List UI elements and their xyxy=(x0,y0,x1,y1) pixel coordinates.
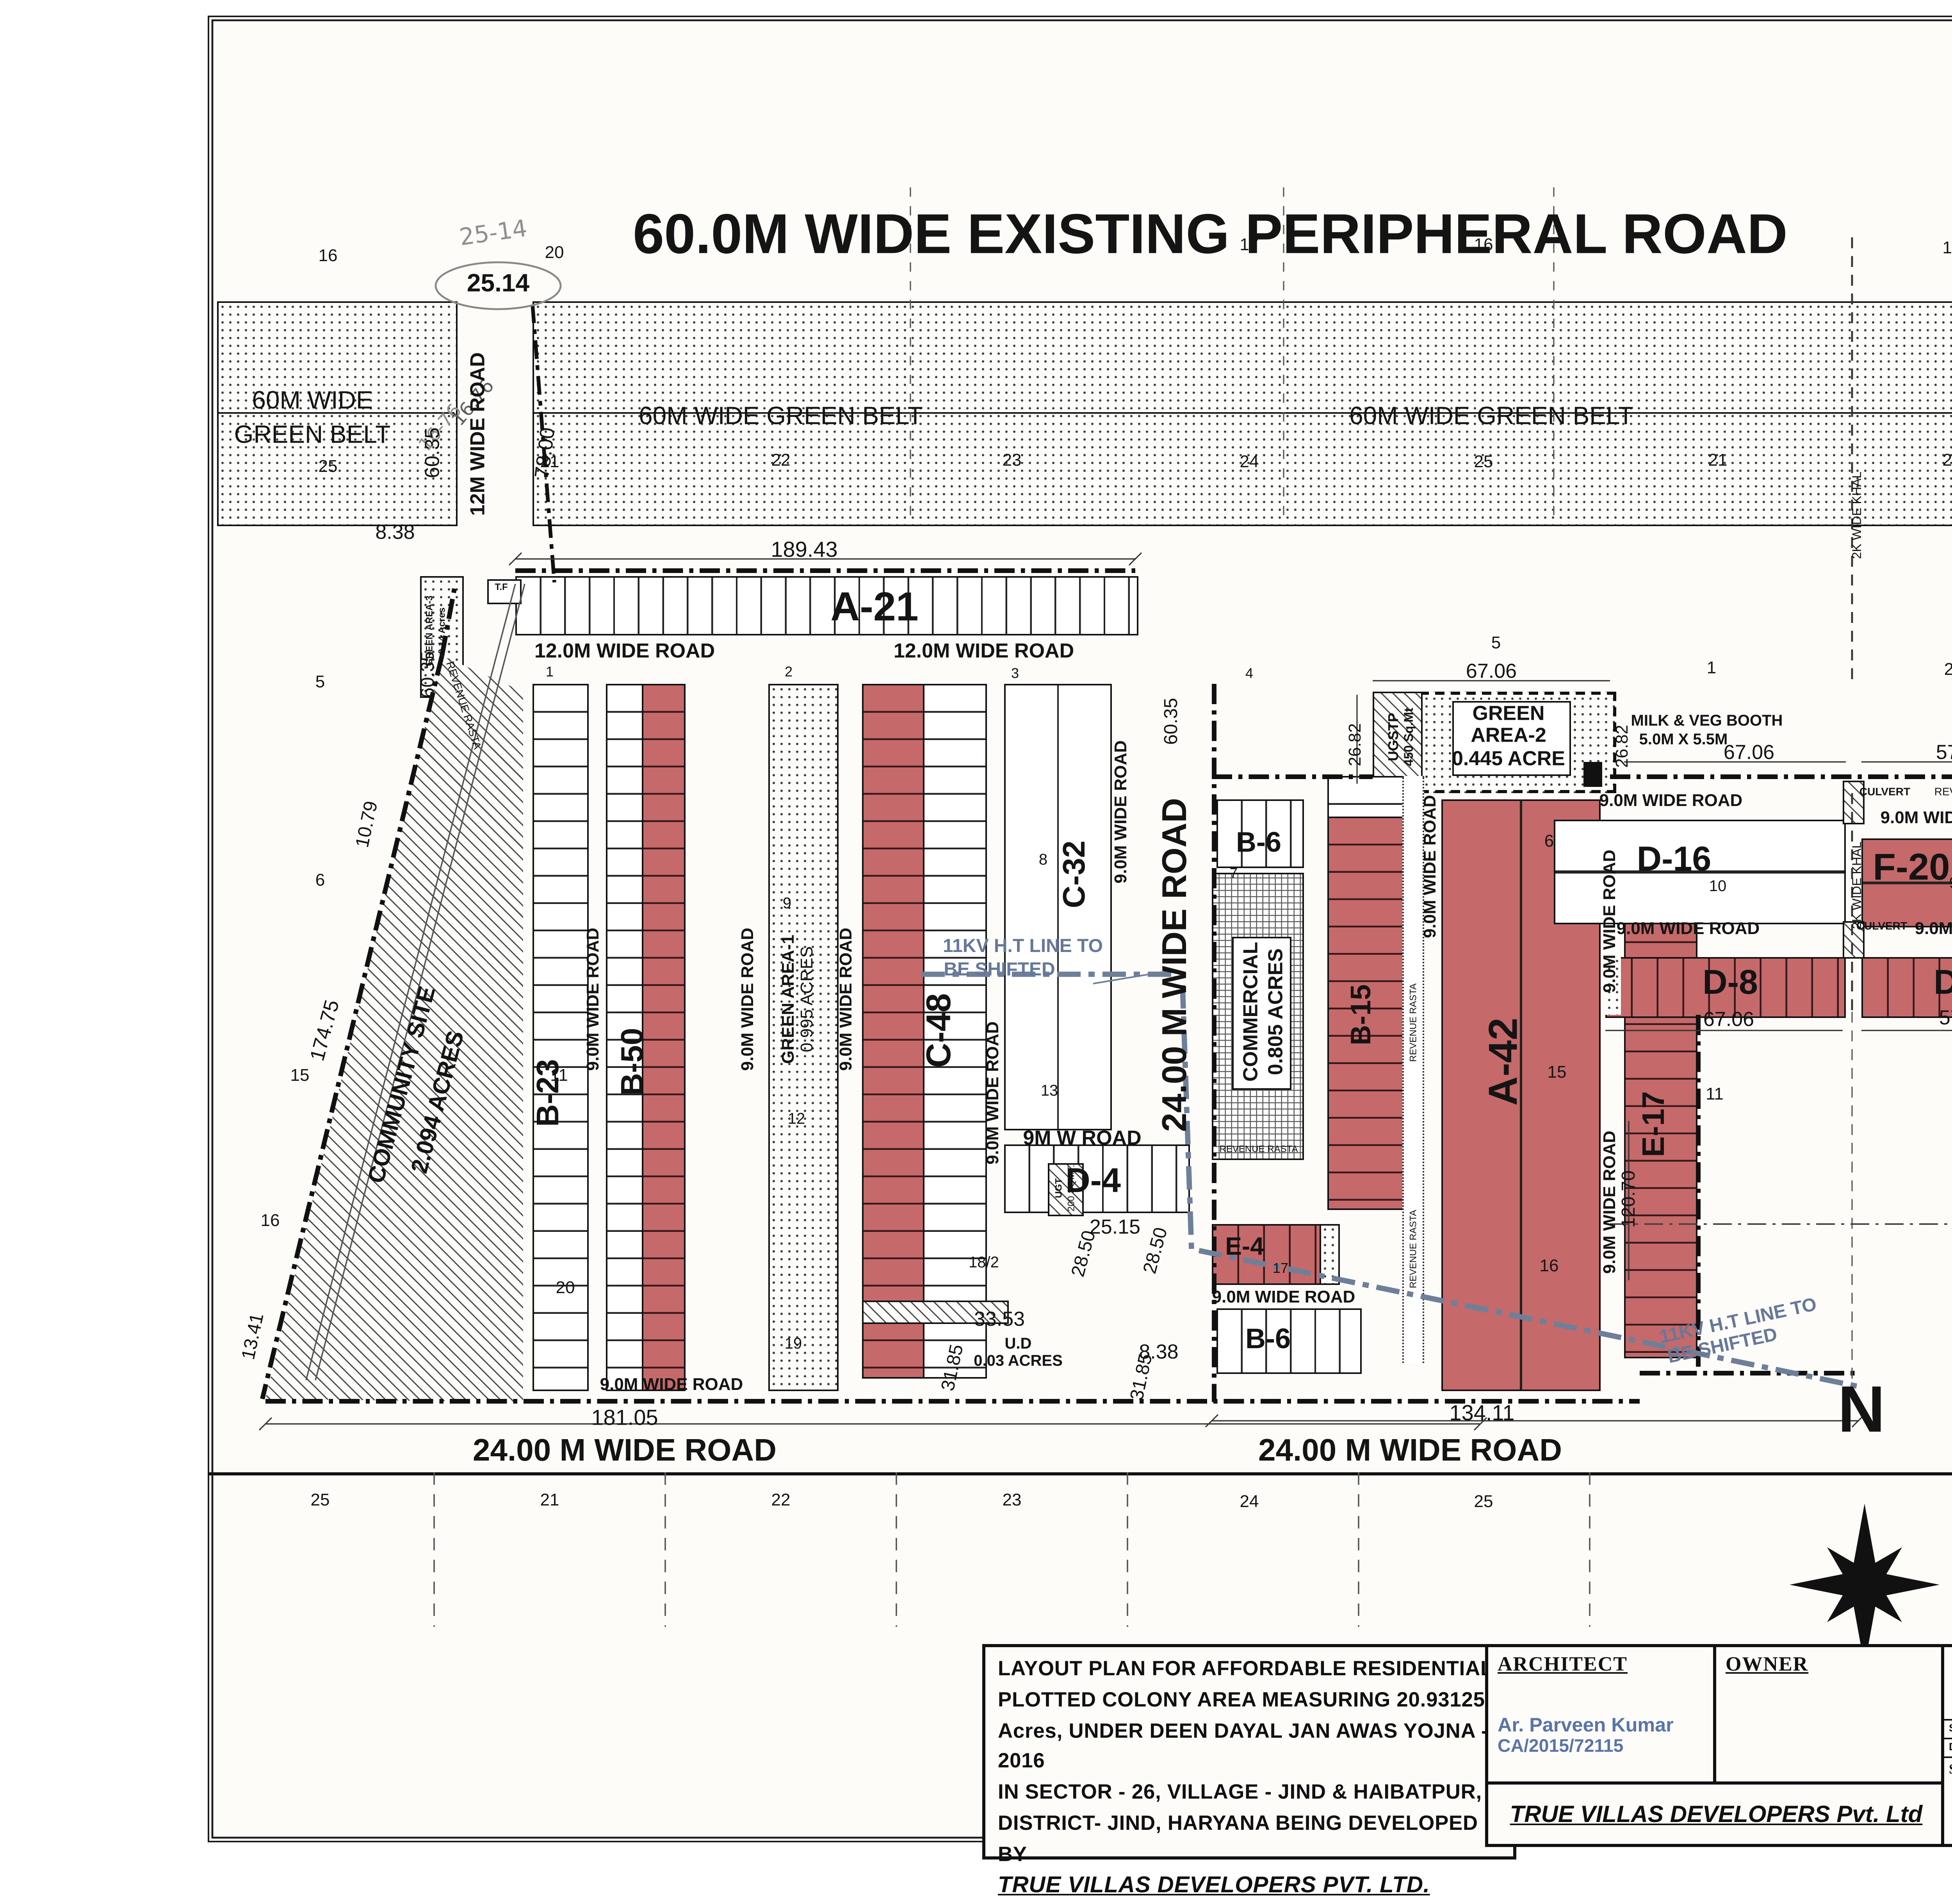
plan-label: BE SHIFTED xyxy=(944,960,1055,979)
dim-or-parcel-number: 22 xyxy=(1943,453,1952,471)
plan-label: 9.0M WIDE ROAD xyxy=(1114,740,1132,884)
dim-or-parcel-number: 17 xyxy=(1273,1262,1288,1277)
plan-label: AREA-2 xyxy=(1471,725,1546,746)
dim-or-parcel-number: 25 xyxy=(319,459,338,477)
sheet-no-label: SHEET N0 xyxy=(1944,1756,1952,1780)
dim-or-parcel-number: 24 xyxy=(1240,1495,1259,1513)
sheet-number: 1 xyxy=(1944,1780,1952,1833)
dim-or-parcel-number: 1 xyxy=(546,666,554,680)
dim-or-parcel-number: 60.35 xyxy=(418,651,438,698)
dim-or-parcel-number: 9 xyxy=(783,897,791,914)
dim-or-parcel-number: 60.35 xyxy=(422,427,443,478)
plan-label: 12M WIDE ROAD xyxy=(467,352,489,516)
dim-or-parcel-number: 10 xyxy=(1709,880,1727,897)
plan-label: 12.0M WIDE ROAD xyxy=(894,641,1074,662)
plan-label: D-7 xyxy=(1934,964,1952,1000)
dim-or-parcel-number: 5 xyxy=(315,675,325,693)
plan-label: REVENUE RASTA xyxy=(1410,984,1419,1062)
plan-label: B-50 xyxy=(618,1028,650,1095)
plan-label: 2K WIDE KHAL xyxy=(1852,842,1865,929)
dim-or-parcel-number: 12 xyxy=(788,1113,805,1129)
dim-or-parcel-number: 11 xyxy=(550,1068,568,1086)
architect-name: Ar. Parveen Kumar xyxy=(1498,1714,1726,1736)
project-title-line: LAYOUT PLAN FOR AFFORDABLE RESIDENTIAL xyxy=(998,1653,1501,1684)
north-letter: N xyxy=(1944,1650,1952,1672)
owner-block: OWNER xyxy=(1713,1644,1952,1797)
plan-label: 60.0M WIDE EXISTING PERIPHERAL ROAD xyxy=(633,205,1788,263)
plan-label: 200 SQMT. xyxy=(1068,1165,1078,1212)
dim-or-parcel-number: 21 xyxy=(1708,453,1728,471)
plan-label: 9.0M WIDE ROAD xyxy=(586,928,604,1071)
plan-label: 60M WIDE GREEN BELT xyxy=(639,405,923,431)
plan-label: B-6 xyxy=(1236,828,1281,858)
project-title-line: PLOTTED COLONY AREA MEASURING 20.93125 xyxy=(998,1684,1501,1715)
dim-or-parcel-number: 2 xyxy=(1944,662,1952,680)
dim-or-parcel-number: 1 xyxy=(1707,661,1717,679)
plan-label: UGT xyxy=(1055,1178,1065,1198)
owner-heading: OWNER xyxy=(1726,1652,1952,1677)
plan-label: REVENUE RASTA xyxy=(1934,787,1952,799)
dim-or-parcel-number: 8.38 xyxy=(375,522,415,543)
dim-or-parcel-number: 67.06 xyxy=(1703,1009,1754,1030)
dim-or-parcel-number: 16 xyxy=(319,249,338,267)
plan-label: 9.0M WIDE ROAD xyxy=(1617,922,1760,940)
plan-label: 9.0M WIDE ROAD xyxy=(1915,922,1952,940)
dim-or-parcel-number: 25-14 xyxy=(458,217,529,251)
scale-row: SCALE = 1: 500 xyxy=(1944,1719,1952,1738)
project-title-line: IN SECTOR - 26, VILLAGE - JIND & HAIBATP… xyxy=(998,1777,1501,1808)
plan-label: U.D xyxy=(1005,1338,1032,1354)
plan-label: E-17 xyxy=(1639,1091,1672,1157)
dim-or-parcel-number: 19 xyxy=(785,1338,802,1354)
dim-or-parcel-number: 26.82 xyxy=(1615,725,1633,768)
plan-label: C-32 xyxy=(1060,840,1092,908)
dim-or-parcel-number: 6 xyxy=(315,873,325,891)
info-block: N SCALE = 1: 500 DATE = DEC. 2021 SHEET … xyxy=(1941,1644,1952,1847)
plan-label: 9.0M WIDE ROAD xyxy=(1603,1131,1621,1274)
north-indicator: N xyxy=(1944,1647,1952,1714)
dim-or-parcel-number: 3 xyxy=(1011,667,1019,682)
dim-or-parcel-number: 2 xyxy=(785,666,793,680)
plan-label: 9.0M WIDE ROAD xyxy=(1212,1290,1355,1308)
dim-or-parcel-number: 25 xyxy=(1474,455,1493,473)
dim-or-parcel-number: 22 xyxy=(771,453,791,471)
plan-label: 0.445 ACRE xyxy=(1452,748,1565,770)
dim-or-parcel-number: 174.75 xyxy=(306,998,343,1063)
dim-or-parcel-number: 17 xyxy=(1240,238,1259,256)
dim-or-parcel-number: 22 xyxy=(771,1493,791,1511)
plan-label: E-4 xyxy=(1225,1236,1264,1262)
plan-label: REVENUE RASTA xyxy=(443,660,482,751)
plan-label: 9.0M WIDE ROAD xyxy=(741,928,759,1071)
project-title-line: Acres, UNDER DEEN DAYAL JAN AWAS YOJNA -… xyxy=(998,1715,1501,1777)
plan-label: GREEN AREA-1 xyxy=(781,935,799,1064)
dim-or-parcel-number: 16 xyxy=(1540,1259,1559,1277)
dim-or-parcel-number: 5 xyxy=(1491,636,1501,654)
plan-label: D-16 xyxy=(1637,841,1712,877)
dim-or-parcel-number: 25 xyxy=(1474,1495,1493,1513)
dim-or-parcel-number: 10.79 xyxy=(353,799,381,849)
dim-or-parcel-number: 25 xyxy=(311,1493,330,1511)
plan-label: 60M WIDE xyxy=(252,390,372,416)
dim-or-parcel-number: 16 xyxy=(1474,238,1493,256)
dim-or-parcel-number: 23 xyxy=(1003,453,1022,471)
dim-or-parcel-number: 31.85 xyxy=(1127,1352,1156,1402)
plan-label: 24.00 M WIDE ROAD xyxy=(1156,798,1192,1132)
plan-label: B-6 xyxy=(1245,1325,1291,1354)
plan-label: N xyxy=(1838,1376,1885,1444)
plan-label: 60M WIDE GREEN BELT xyxy=(1349,405,1633,431)
plan-label: 0.805 ACRES xyxy=(1265,948,1287,1075)
project-title-line: DISTRICT- JIND, HARYANA BEING DEVELOPED … xyxy=(998,1808,1501,1870)
dim-or-parcel-number: 24 xyxy=(1240,455,1259,473)
dim-or-parcel-number: 15 xyxy=(290,1068,310,1086)
plan-label: 5.0M X 5.5M xyxy=(1639,733,1728,750)
plan-label: GREEN BELT xyxy=(234,424,391,450)
dim-or-parcel-number: 60.35 xyxy=(1161,698,1181,745)
dim-or-parcel-number: 57.00 xyxy=(1939,1007,1952,1029)
dim-or-parcel-number: 6 xyxy=(1544,834,1554,852)
plan-label: 11KV H.T LINE TO xyxy=(943,936,1103,956)
dim-or-parcel-number: 11 xyxy=(1706,1087,1724,1105)
drawing-sheet-stage: 60.0M WIDE EXISTING PERIPHERAL ROAD16202… xyxy=(0,0,1952,1853)
dim-or-parcel-number: 21 xyxy=(540,1493,559,1511)
dim-or-parcel-number: 181.05 xyxy=(591,1406,658,1429)
plan-label: D-8 xyxy=(1703,964,1758,1000)
plan-label: 0.03 ACRES xyxy=(974,1355,1063,1371)
plan-label: UGSTP xyxy=(1387,713,1402,761)
date-row: DATE = DEC. 2021 xyxy=(1944,1738,1952,1756)
dim-or-parcel-number: 23 xyxy=(1003,1493,1022,1511)
dim-or-parcel-number: 57.00 xyxy=(1936,742,1952,763)
plan-label: A-21 xyxy=(830,586,918,628)
project-title-block: LAYOUT PLAN FOR AFFORDABLE RESIDENTIALPL… xyxy=(982,1644,1516,1860)
dim-or-parcel-number: 13 xyxy=(1041,1085,1058,1101)
plan-label: GREEN xyxy=(1473,703,1545,724)
dim-or-parcel-number: 13.41 xyxy=(239,1311,267,1361)
dim-or-parcel-number: 134.11 xyxy=(1449,1402,1514,1425)
plan-label: 450 Sq.Mt xyxy=(1403,708,1417,766)
dim-or-parcel-number: 26.82 xyxy=(1348,723,1366,766)
dim-or-parcel-number: 33.53 xyxy=(974,1309,1025,1330)
dim-or-parcel-number: 189.43 xyxy=(771,538,837,561)
plan-label: 9.0M WIDE ROAD xyxy=(986,1021,1004,1165)
plan-label: 0.14 Acres xyxy=(438,607,448,654)
plan-label: CULVERT xyxy=(1856,922,1907,933)
dim-or-parcel-number: 4 xyxy=(1245,667,1253,682)
plan-label: 24.00 M WIDE ROAD xyxy=(1258,1436,1562,1468)
plan-label: F-20 xyxy=(1873,849,1950,888)
dim-or-parcel-number: 15 xyxy=(1548,1065,1567,1083)
plan-label: REVENUE RASTA xyxy=(1220,1146,1298,1155)
dim-or-parcel-number: 20 xyxy=(556,1281,575,1299)
dim-or-parcel-number: 28.50 xyxy=(1068,1228,1099,1279)
plan-label: REVENUE RASTA xyxy=(1410,1210,1419,1288)
plan-label: 9.0M WIDE ROAD xyxy=(1881,811,1952,829)
plan-label: 0.995 ACRES xyxy=(800,946,818,1052)
plan-label: 9.0M WIDE ROAD xyxy=(600,1377,743,1395)
plan-label: T.F xyxy=(495,584,508,593)
architect-heading: ARCHITECT xyxy=(1498,1652,1726,1677)
dim-or-parcel-number: 8 xyxy=(1039,854,1047,870)
scale-label: SCALE xyxy=(1949,1724,1952,1735)
dim-or-parcel-number: 28.50 xyxy=(1140,1225,1171,1276)
plan-label: A-42 xyxy=(1482,1018,1525,1105)
dim-or-parcel-number: 9 xyxy=(1949,877,1952,893)
plan-label: 24.00 M WIDE ROAD xyxy=(473,1436,777,1468)
plan-label: 9.0M WIDE ROAD xyxy=(1599,794,1743,811)
plan-label: 2K WIDE KHAL xyxy=(1852,472,1865,559)
dim-or-parcel-number: 7 xyxy=(1230,867,1238,882)
architect-block: ARCHITECT Ar. Parveen Kumar CA/2015/7211… xyxy=(1485,1644,1738,1797)
dim-or-parcel-number: 16 xyxy=(261,1214,280,1231)
dim-or-parcel-number: 31.85 xyxy=(938,1343,967,1393)
developer-name: TRUE VILLAS DEVELOPERS Pvt. Ltd xyxy=(1510,1801,1923,1827)
plan-label: COMMERCIAL xyxy=(1240,942,1262,1082)
dim-or-parcel-number: 20 xyxy=(545,246,564,263)
plan-label: 12.0M WIDE ROAD xyxy=(534,641,715,662)
project-title-lines: LAYOUT PLAN FOR AFFORDABLE RESIDENTIALPL… xyxy=(998,1653,1501,1904)
plan-label: B-15 xyxy=(1347,984,1377,1045)
dim-or-parcel-number: 19 xyxy=(1943,241,1952,259)
plan-label: 9M W ROAD xyxy=(1023,1128,1141,1149)
dim-or-parcel-number: 67.06 xyxy=(1724,742,1774,763)
plan-label: C-48 xyxy=(921,993,956,1068)
dim-or-parcel-number: 67.06 xyxy=(1466,661,1517,682)
plan-label: 9.0M WIDE ROAD xyxy=(1423,795,1441,938)
architect-signature-space xyxy=(1498,1677,1726,1714)
architect-registration: CA/2015/72115 xyxy=(1498,1736,1726,1756)
dim-or-parcel-number: 120.70 xyxy=(1619,1171,1639,1228)
dim-or-parcel-number: 25.14 xyxy=(467,272,529,299)
date-label: DATE xyxy=(1949,1742,1952,1753)
plan-annotation-layer: 60.0M WIDE EXISTING PERIPHERAL ROAD16202… xyxy=(0,0,1952,1853)
plan-label: CULVERT xyxy=(1859,787,1910,799)
project-title-line: TRUE VILLAS DEVELOPERS PVT. LTD. xyxy=(998,1870,1501,1904)
developer-strip: TRUE VILLAS DEVELOPERS Pvt. Ltd xyxy=(1485,1781,1947,1847)
plan-label: 9.0M WIDE ROAD xyxy=(1603,850,1621,993)
dim-or-parcel-number: 18/2 xyxy=(969,1256,999,1273)
plan-label: 9.0M WIDE ROAD xyxy=(839,928,857,1071)
plan-label: MILK & VEG BOOTH xyxy=(1631,715,1783,731)
